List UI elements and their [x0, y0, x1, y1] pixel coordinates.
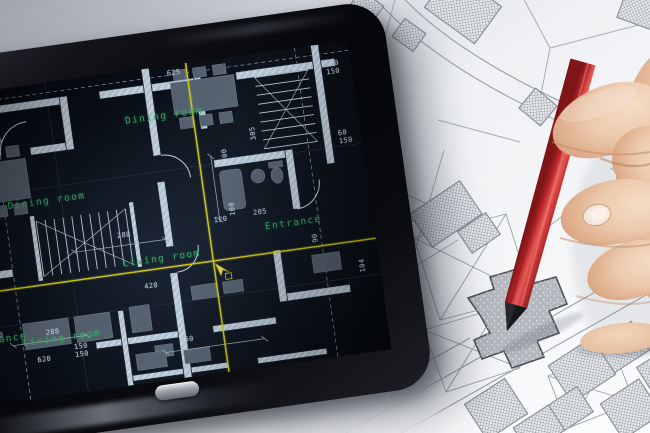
hand-with-pencil	[0, 0, 650, 433]
hand	[541, 50, 650, 357]
scene: Dining roomDining roomLiving roomEntranc…	[0, 0, 650, 433]
